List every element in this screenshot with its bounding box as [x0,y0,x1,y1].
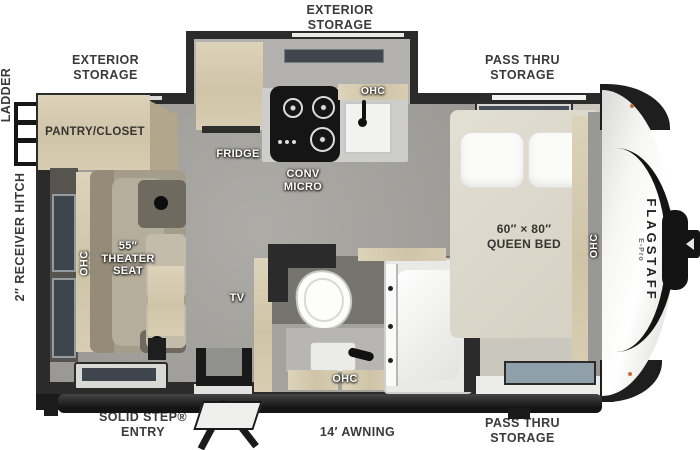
floorplan: EXTERIOR STORAGE EXTERIOR STORAGE PASS T… [0,0,700,450]
brand-name: FLAGSTAFF [644,198,659,301]
label-line: 60″ × 80″ [468,222,580,237]
label-fridge: FRIDGE [206,148,270,161]
rear-bumper [44,408,58,416]
bedroom-overhead-cabinet [572,116,588,372]
rear-window [52,278,76,358]
label-line: CONV [274,168,332,181]
kitchen-faucet-head [358,118,367,127]
burner [310,127,335,152]
brand-model: E-Pro [637,238,644,262]
label-ohc-sofa: OHC [79,243,92,283]
label-line: 55″ [96,240,160,253]
burner [312,96,335,119]
curbside-window-glass [82,368,156,381]
label-line: STORAGE [450,431,595,446]
bedroom-window-sliver [492,95,586,100]
label-exterior-storage-top: EXTERIOR STORAGE [265,3,415,33]
fridge [196,42,263,130]
cooktop-knob [278,140,282,144]
label-pass-thru-storage-bottom: PASS THRU STORAGE [450,416,595,446]
label-line: MICRO [274,181,332,194]
pillow [460,132,524,188]
tv-cabinet [148,266,184,336]
label-ladder: LADDER [0,40,13,150]
label-line: QUEEN BED [468,237,580,252]
label-receiver-hitch: 2″ RECEIVER HITCH [13,164,27,310]
label-line: EXTERIOR [38,53,173,68]
burner [283,98,303,118]
entry-step-icon [193,401,262,430]
label-queen-bed: 60″ × 80″ QUEEN BED [468,222,580,252]
bathroom-sink [310,342,356,372]
label-ohc-bathroom: OHC [320,373,370,386]
fridge-vent [202,126,260,133]
label-ohc-kitchen: OHC [344,85,402,97]
label-pantry-closet: PANTRY/CLOSET [44,126,146,138]
cupholder [154,196,168,210]
kitchen-slide-window-sliver [292,33,404,37]
kitchen-window [284,49,384,63]
label-solid-step-entry: SOLID STEP® ENTRY [86,410,200,440]
label-line: STORAGE [450,68,595,83]
kitchen-sink [344,102,392,154]
cooktop-knob [292,140,296,144]
speaker [148,338,166,360]
brand-graphic: FLAGSTAFF E-Pro [634,145,662,355]
toilet-seat [304,278,344,322]
label-line: STORAGE [38,68,173,83]
label-conv-micro: CONV MICRO [274,168,332,193]
label-pass-thru-storage-top: PASS THRU STORAGE [450,53,595,83]
shower-shelf [358,248,446,261]
clearance-light [628,372,632,376]
label-exterior-storage-rear: EXTERIOR STORAGE [38,53,173,83]
label-ohc-bedroom: OHC [588,226,600,266]
bedroom-window-bottom [504,361,596,385]
bathroom-wall [268,244,288,302]
label-line: THEATER [96,253,160,266]
shower-door-hinge [388,286,393,291]
entry-door-inner [206,348,242,376]
shower-door-hinge [388,324,393,329]
cooktop-knob [285,140,289,144]
frame-tab [508,408,530,419]
clearance-light [630,104,634,108]
label-tv: TV [222,292,252,305]
label-line: ENTRY [86,425,200,440]
label-line: PASS THRU [450,53,595,68]
rear-window [52,194,76,272]
label-line: EXTERIOR [265,3,415,18]
shower-door-hinge [388,358,393,363]
kitchen-faucet [362,100,366,120]
label-awning: 14′ AWNING [295,425,420,440]
hitch-coupler-arrow [686,238,694,250]
